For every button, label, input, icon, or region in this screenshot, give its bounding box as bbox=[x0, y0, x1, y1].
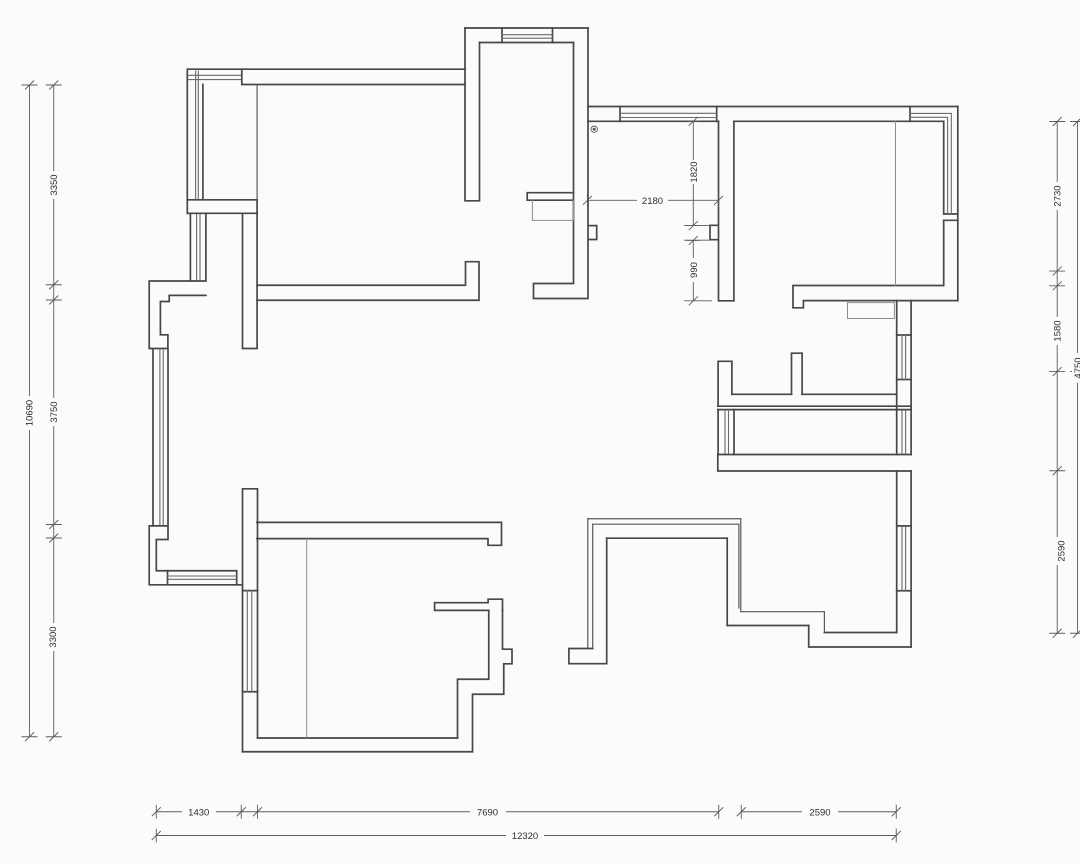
svg-text:4750: 4750 bbox=[1073, 357, 1080, 378]
svg-text:1430: 1430 bbox=[188, 807, 209, 818]
svg-text:2180: 2180 bbox=[642, 196, 663, 207]
svg-text:2730: 2730 bbox=[1053, 185, 1064, 206]
svg-text:3350: 3350 bbox=[49, 174, 60, 195]
svg-text:1580: 1580 bbox=[1053, 320, 1064, 341]
svg-text:2590: 2590 bbox=[1057, 540, 1068, 561]
svg-text:1820: 1820 bbox=[689, 161, 700, 182]
svg-text:3300: 3300 bbox=[48, 626, 59, 647]
svg-text:10690: 10690 bbox=[25, 400, 36, 426]
svg-text:12320: 12320 bbox=[512, 831, 538, 842]
svg-text:2590: 2590 bbox=[809, 807, 830, 818]
svg-text:990: 990 bbox=[689, 262, 700, 278]
svg-text:7690: 7690 bbox=[477, 807, 498, 818]
svg-text:3750: 3750 bbox=[49, 401, 60, 422]
